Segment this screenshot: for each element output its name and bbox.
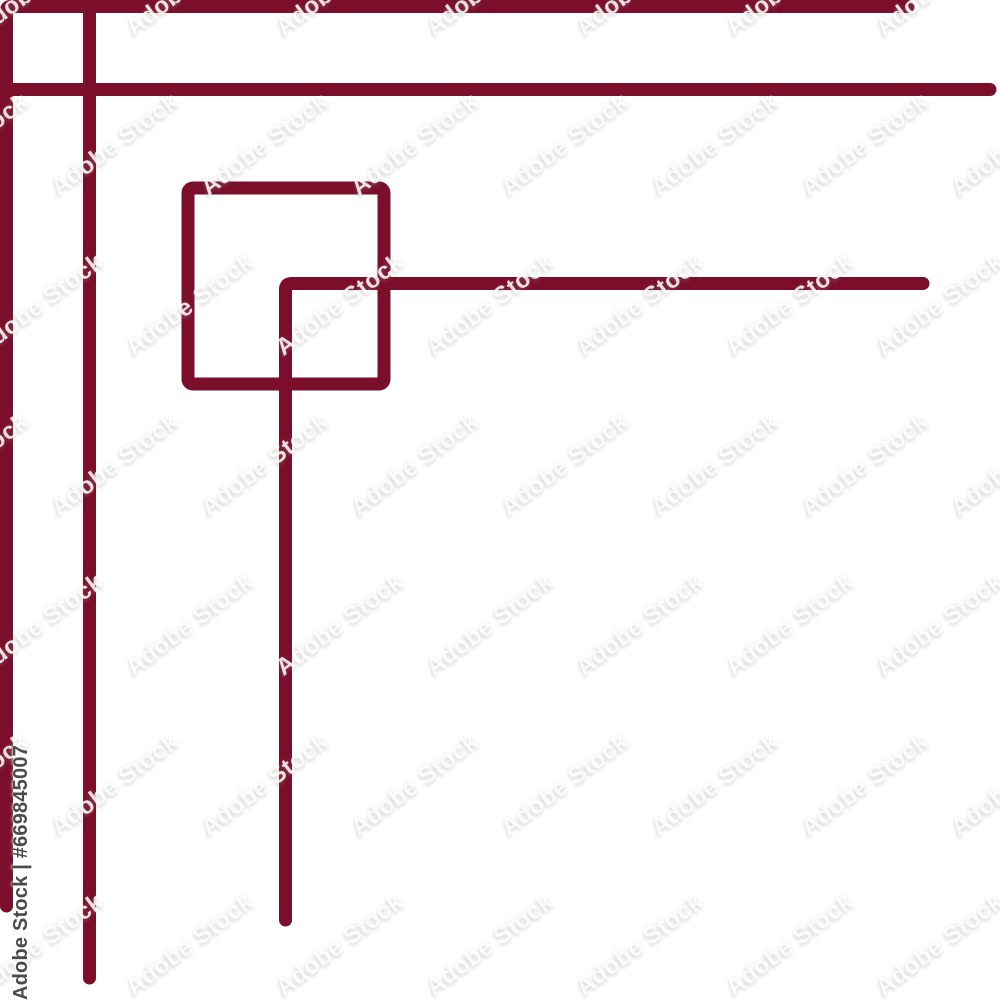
watermark-text: Adobe Stock	[646, 408, 784, 522]
watermark-text: Adobe Stock	[0, 0, 109, 42]
watermark-text: Adobe Stock	[0, 248, 109, 362]
watermark-text: Adobe Stock	[646, 728, 784, 842]
watermark-text: Adobe Stock	[121, 0, 259, 42]
watermark-text: Adobe Stock	[496, 408, 634, 522]
watermark-text: Adobe Stock	[196, 408, 334, 522]
watermark-text: Adobe Stock	[721, 248, 859, 362]
stock-image-canvas: Adobe StockAdobe StockAdobe StockAdobe S…	[0, 0, 1000, 1000]
watermark-text: Adobe Stock	[796, 408, 934, 522]
watermark-text: Adobe Stock	[46, 408, 184, 522]
watermark-text: Adobe Stock	[721, 888, 859, 1000]
watermark-text: Adobe Stock	[871, 248, 1000, 362]
watermark-text: Adobe Stock	[271, 568, 409, 682]
watermark-text: Adobe Stock	[421, 888, 559, 1000]
watermark-text: Adobe Stock	[421, 248, 559, 362]
watermark-text: Adobe Stock	[46, 88, 184, 202]
watermark-layer: Adobe StockAdobe StockAdobe StockAdobe S…	[0, 0, 1000, 1000]
watermark-text: Adobe Stock	[271, 888, 409, 1000]
watermark-text: Adobe Stock	[0, 408, 34, 522]
watermark-text: Adobe Stock	[271, 248, 409, 362]
watermark-text: Adobe Stock	[196, 88, 334, 202]
watermark-text: Adobe Stock	[571, 888, 709, 1000]
watermark-text: Adobe Stock	[871, 568, 1000, 682]
watermark-text: Adobe Stock	[721, 568, 859, 682]
watermark-text: Adobe Stock	[271, 0, 409, 42]
watermark-text: Adobe Stock	[121, 568, 259, 682]
watermark-text: Adobe Stock	[946, 728, 1000, 842]
watermark-text: Adobe Stock	[121, 248, 259, 362]
stock-id-watermark: Adobe Stock | #669845007	[10, 748, 33, 1000]
watermark-text: Adobe Stock	[946, 408, 1000, 522]
watermark-text: Adobe Stock	[421, 568, 559, 682]
watermark-text: Adobe Stock	[646, 88, 784, 202]
watermark-text: Adobe Stock	[346, 728, 484, 842]
watermark-text: Adobe Stock	[46, 728, 184, 842]
watermark-text: Adobe Stock	[871, 0, 1000, 42]
watermark-text: Adobe Stock	[496, 88, 634, 202]
watermark-text: Adobe Stock	[721, 0, 859, 42]
watermark-text: Adobe Stock	[196, 728, 334, 842]
watermark-text: Adobe Stock	[796, 88, 934, 202]
watermark-text: Adobe Stock	[421, 0, 559, 42]
watermark-text: Adobe Stock	[0, 88, 34, 202]
watermark-text: Adobe Stock	[946, 88, 1000, 202]
watermark-text: Adobe Stock	[571, 0, 709, 42]
watermark-text: Adobe Stock	[346, 408, 484, 522]
watermark-text: Adobe Stock	[121, 888, 259, 1000]
watermark-text: Adobe Stock	[571, 568, 709, 682]
watermark-text: Adobe Stock	[796, 728, 934, 842]
watermark-text: Adobe Stock	[571, 248, 709, 362]
watermark-text: Adobe Stock	[0, 568, 109, 682]
watermark-text: Adobe Stock	[496, 728, 634, 842]
watermark-text: Adobe Stock	[346, 88, 484, 202]
watermark-text: Adobe Stock	[871, 888, 1000, 1000]
